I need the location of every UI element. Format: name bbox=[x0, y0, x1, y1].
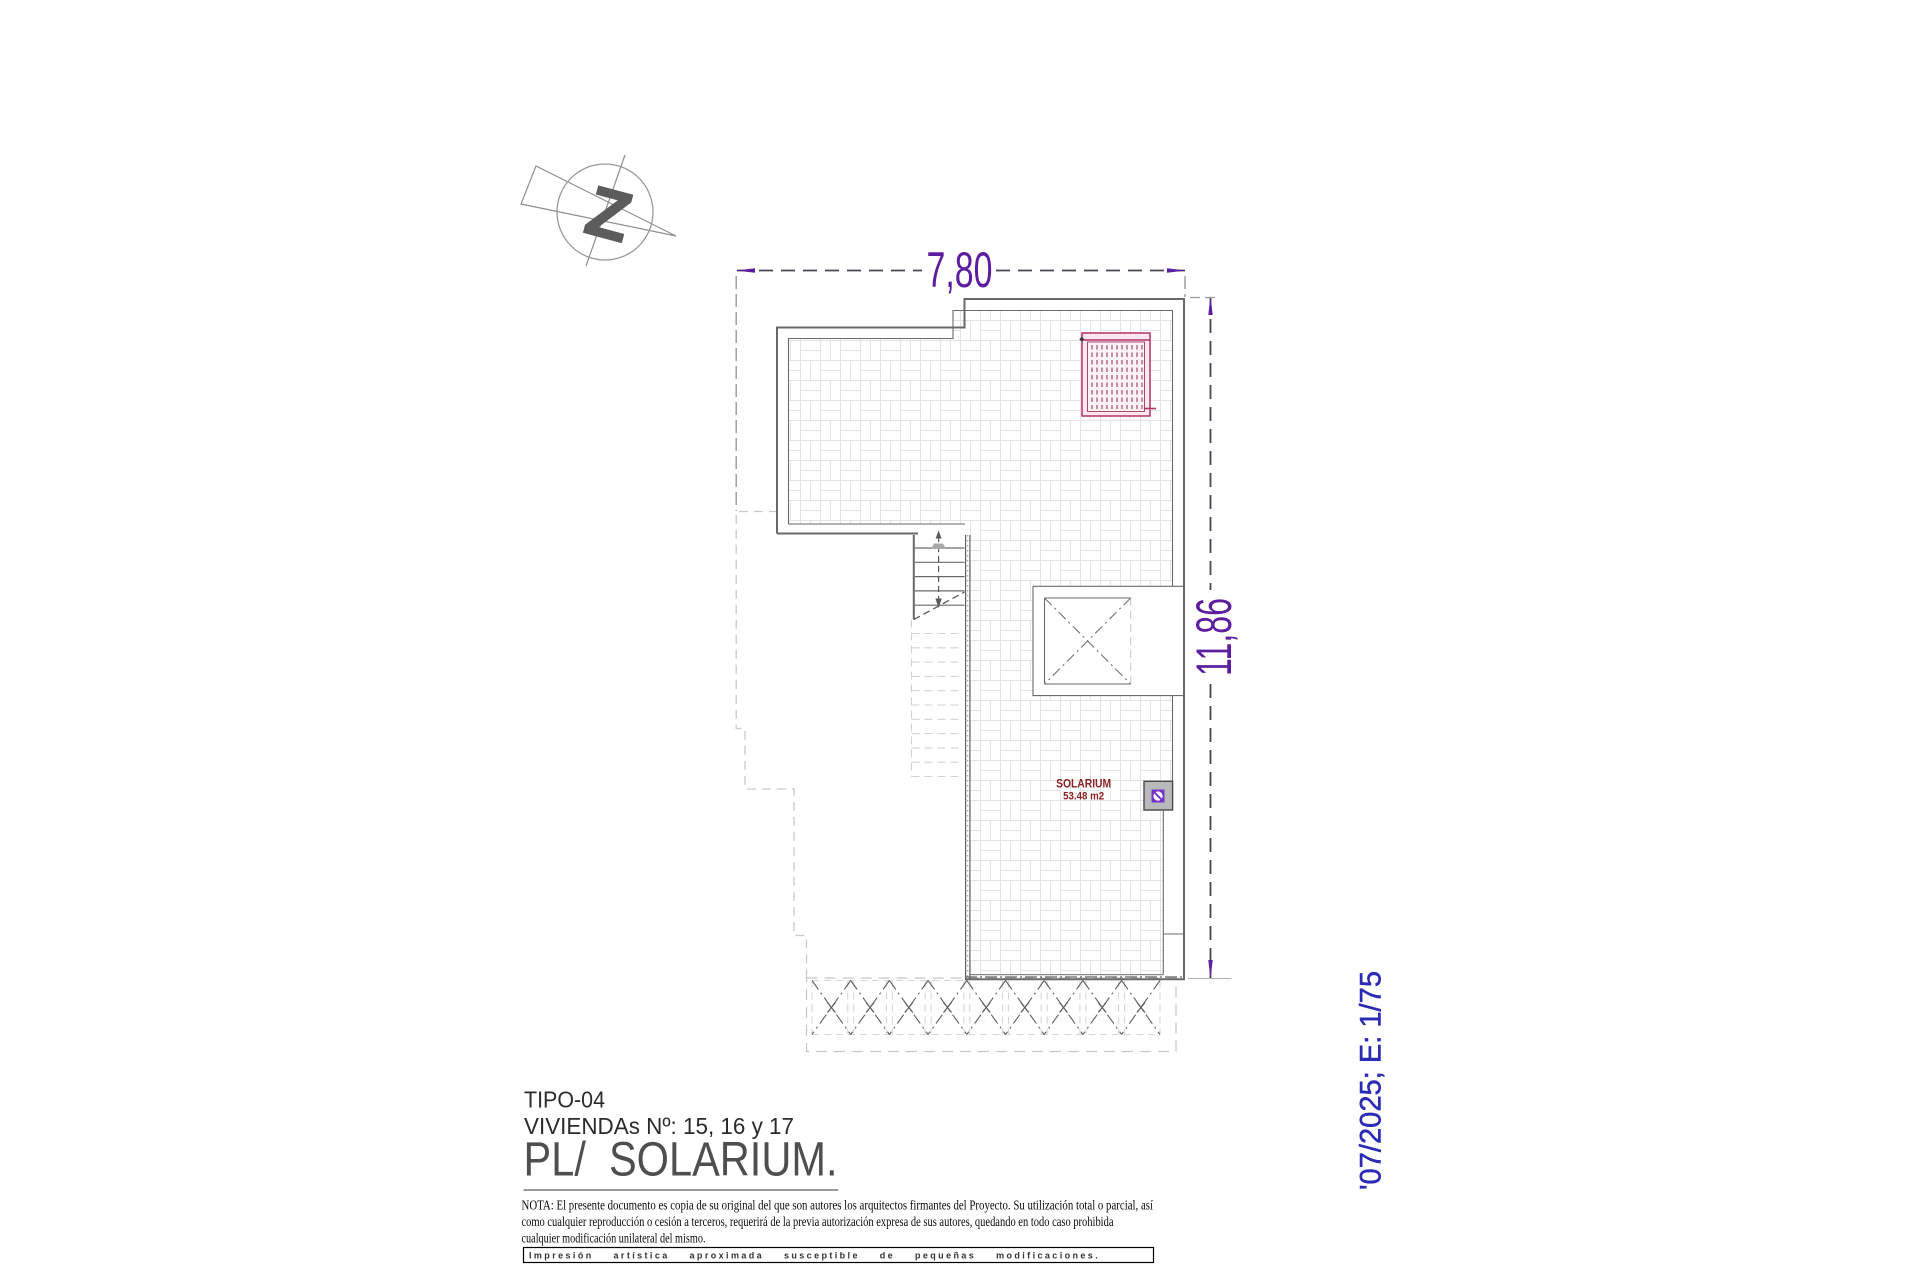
svg-text:TIPO-04: TIPO-04 bbox=[524, 1087, 605, 1113]
svg-text:PL/ SOLARIUM.: PL/ SOLARIUM. bbox=[524, 1133, 838, 1187]
svg-text:NOTA: El presente documento es: NOTA: El presente documento es copia de … bbox=[522, 1198, 1154, 1213]
svg-text:7,80: 7,80 bbox=[927, 242, 993, 298]
svg-text:Z: Z bbox=[578, 171, 639, 257]
svg-text:11,86: 11,86 bbox=[1186, 598, 1242, 676]
svg-text:'07/2025; E: 1/75: '07/2025; E: 1/75 bbox=[1355, 971, 1388, 1190]
svg-text:como cualquier reproducción o: como cualquier reproducción o cesión a t… bbox=[522, 1214, 1114, 1229]
svg-text:53.48 m2: 53.48 m2 bbox=[1063, 791, 1104, 803]
svg-text:Impresión artística aproximada: Impresión artística aproximada susceptib… bbox=[529, 1251, 1100, 1261]
svg-text:cualquier modificación unilate: cualquier modificación unilateral del mi… bbox=[522, 1231, 706, 1246]
svg-text:SOLARIUM: SOLARIUM bbox=[1056, 777, 1111, 791]
